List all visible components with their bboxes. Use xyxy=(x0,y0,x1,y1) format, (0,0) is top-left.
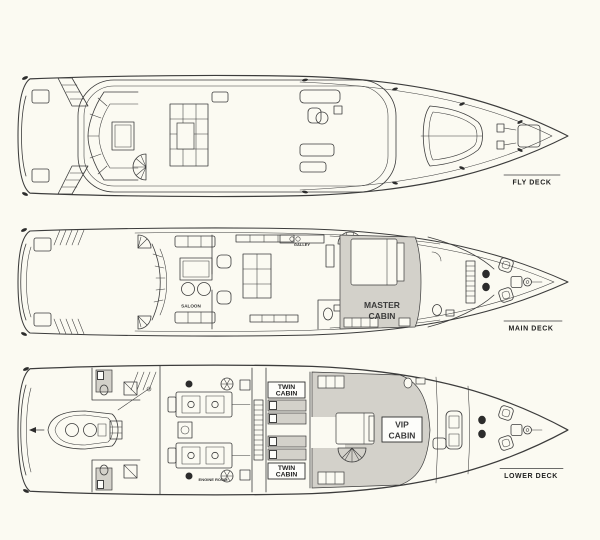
fly-deck-label-text: FLY DECK xyxy=(512,180,551,187)
spiral-stairs-icon xyxy=(133,154,146,180)
deck-chair xyxy=(498,405,514,421)
vip-cabin-label-line1: VIP xyxy=(395,420,409,430)
twin-cabin-starboard: TWIN CABIN xyxy=(268,436,306,479)
transom-step xyxy=(22,96,27,176)
bow-section xyxy=(433,377,542,483)
engine-room: ENGINE ROOM xyxy=(168,378,250,482)
master-cabin-label-line1: MASTER xyxy=(364,300,400,310)
tender-garage xyxy=(29,387,151,449)
master-bed xyxy=(351,239,397,285)
bow-hardware xyxy=(497,124,516,149)
saloon-label: SALOON xyxy=(181,304,201,309)
engine-hatch-port xyxy=(221,378,233,390)
stern-lockers xyxy=(21,75,49,196)
twin-cabin-port: TWIN CABIN xyxy=(268,382,306,424)
master-cabin-label-line2: CABIN xyxy=(369,311,396,321)
vip-cabin: VIP CABIN xyxy=(311,372,430,488)
vip-cabin-label-line2: CABIN xyxy=(389,431,416,441)
aft-deck xyxy=(152,236,215,323)
lower-deck-label: LOWER DECK xyxy=(500,469,563,481)
saloon-furniture xyxy=(217,235,298,322)
crew-quarters xyxy=(92,368,156,492)
rail-cleats xyxy=(302,78,523,194)
twin-cabin-starboard-label-line2: CABIN xyxy=(276,472,298,479)
windshield xyxy=(428,237,494,327)
vip-bed xyxy=(336,413,374,444)
launch-arrow xyxy=(29,427,44,433)
helm-seat xyxy=(478,430,486,438)
galley: GALLEY xyxy=(280,235,334,267)
lower-deck-plan: ENGINE ROOM TWIN CABIN TWIN CABIN xyxy=(18,365,568,495)
sun-pad xyxy=(421,106,483,166)
deck-chairs xyxy=(498,257,514,303)
anchor-windlass xyxy=(511,277,542,288)
twin-cabin-port-label-line2: CABIN xyxy=(276,391,298,398)
fly-deck-plan: FLY DECK xyxy=(18,75,568,196)
engine-starboard xyxy=(168,443,250,468)
companionway-ladder xyxy=(466,261,475,303)
flybridge-settee xyxy=(88,92,138,180)
main-deck-label-text: MAIN DECK xyxy=(508,326,553,333)
forward-head xyxy=(432,252,454,316)
flybridge-helm xyxy=(300,90,342,172)
helm-seat xyxy=(478,416,486,424)
tender xyxy=(48,411,122,449)
master-cabin: MASTER CABIN xyxy=(340,235,421,329)
swim-platform xyxy=(20,227,51,336)
deck-plan-diagram: FLY DECK xyxy=(0,0,600,540)
fly-deck-label: FLY DECK xyxy=(504,175,560,187)
wet-bar xyxy=(170,104,208,166)
deck-chair xyxy=(498,435,514,451)
main-deck-plan: SALOON GALLEY xyxy=(18,227,568,336)
lower-deck-label-text: LOWER DECK xyxy=(504,473,558,480)
hull-outline xyxy=(18,75,568,196)
bench-seat xyxy=(212,92,228,102)
stern-stairs xyxy=(54,230,84,334)
galley-label: GALLEY xyxy=(294,242,311,247)
day-head xyxy=(318,300,342,329)
flybridge-platform xyxy=(78,80,396,192)
engine-room-label: ENGINE ROOM xyxy=(199,477,229,482)
anchor-windlass xyxy=(511,425,542,436)
main-deck-label: MAIN DECK xyxy=(504,321,562,333)
tank-hatch-band xyxy=(254,400,263,460)
helm-seats xyxy=(482,270,490,291)
engine-port xyxy=(168,392,250,417)
yacht-deck-plans: FLY DECK xyxy=(0,0,600,540)
radar-arch xyxy=(58,78,88,194)
quarter-stairs xyxy=(138,235,151,329)
bow-hatch xyxy=(518,125,540,147)
engine-room-bulkheads xyxy=(160,366,252,494)
